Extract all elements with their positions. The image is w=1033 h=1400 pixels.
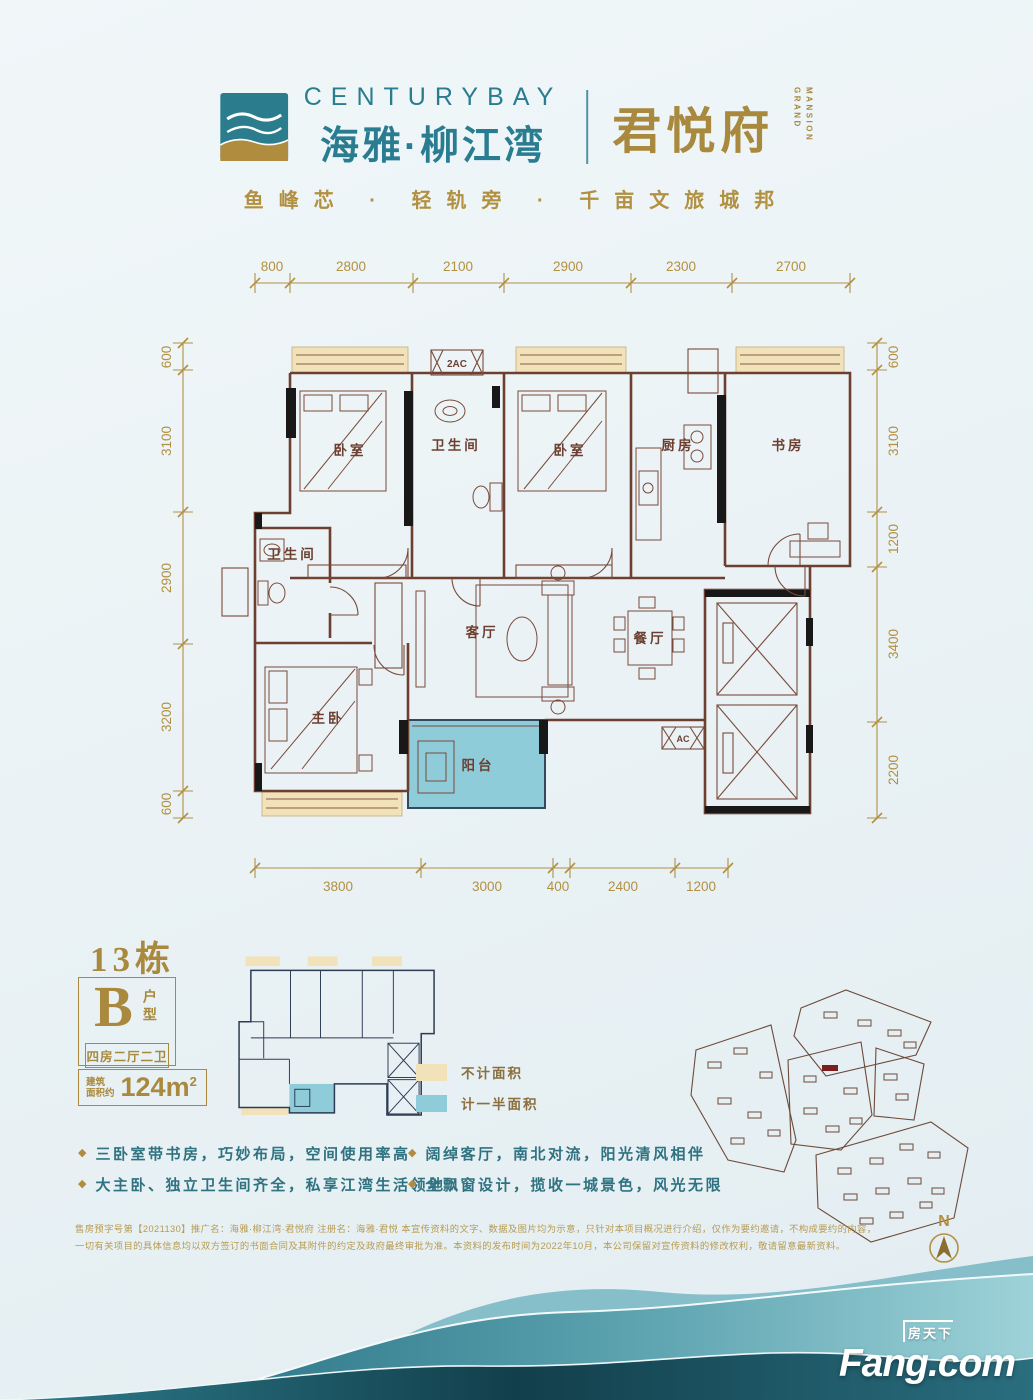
brand-divider [586, 90, 588, 164]
unit-type-box: B 户型 四房二厅二卫 [78, 977, 176, 1066]
label-study: 书房 [772, 437, 805, 453]
feature-text-2: 阔绰客厅，南北对流，阳光清风相伴 [425, 1143, 705, 1164]
legend-not-counted: 不计面积 [416, 1062, 539, 1082]
label-bathroom1: 卫生间 [431, 437, 481, 453]
feature-item: ◆ 大主卧、独立卫生间齐全，私享江湾生活领地 [78, 1174, 445, 1205]
dim-right-1: 3100 [886, 426, 901, 456]
feature-text-3: 全飘窗设计，揽收一城景色，风光无限 [425, 1174, 723, 1195]
area-legend: 不计面积 计一半面积 [416, 1062, 539, 1124]
floor-plan: 800 2800 2100 2900 2300 2700 600 3100 29… [150, 243, 920, 898]
dim-left-0: 600 [159, 346, 174, 369]
brand-names: CENTURYBAY 海雅·柳江湾 [304, 83, 563, 171]
project-name-english: GRAND MANSION [792, 87, 813, 167]
features-left: ◆ 三卧室带书房，巧妙布局，空间使用率高 ◆ 大主卧、独立卫生间齐全，私享江湾生… [78, 1143, 445, 1205]
label-bathroom2: 卫生间 [267, 546, 317, 562]
project-name: 君悦府 [612, 92, 774, 163]
legend-swatch-blue [416, 1095, 447, 1112]
dim-bottom-4: 1200 [686, 879, 716, 894]
legend-label-half-counted: 计一半面积 [461, 1093, 539, 1113]
area-label: 建筑面积约 [86, 1077, 115, 1099]
diamond-bullet-icon: ◆ [78, 1177, 86, 1190]
brand-chinese: 海雅·柳江湾 [320, 115, 546, 171]
brand-header: CENTURYBAY 海雅·柳江湾 君悦府 GRAND MANSION [220, 82, 814, 172]
dim-left-3: 3200 [159, 702, 174, 732]
disclaimer: 售房预字号第【2021130】推广名：海雅·柳江湾·君悦府 注册名：海雅·君悦 … [75, 1221, 963, 1255]
feature-text-0: 三卧室带书房，巧妙布局，空间使用率高 [95, 1143, 410, 1164]
dimension-top: 800 2800 2100 2900 2300 2700 [250, 259, 855, 293]
label-bedroom1: 卧室 [334, 442, 367, 458]
site-buildings [708, 1012, 944, 1224]
dim-right-2: 1200 [886, 524, 901, 554]
feature-text-1: 大主卧、独立卫生间齐全，私享江湾生活领地 [95, 1174, 445, 1195]
label-2ac: 2AC [447, 359, 467, 370]
label-balcony: 阳台 [462, 757, 495, 773]
dim-top-0: 800 [261, 259, 284, 274]
unit-layout: 四房二厅二卫 [85, 1043, 169, 1068]
dim-bottom-3: 2400 [608, 879, 638, 894]
fang-logo-chinese: 房天下 [903, 1320, 953, 1342]
dim-right-3: 3400 [886, 629, 901, 659]
centurybay-logo-icon [220, 93, 288, 161]
dim-bottom-1: 3000 [472, 879, 502, 894]
feature-item: ◆ 三卧室带书房，巧妙布局，空间使用率高 [78, 1143, 445, 1174]
label-bedroom2: 卧室 [554, 442, 587, 458]
label-kitchen: 厨房 [662, 437, 695, 453]
dimension-right: 600 3100 1200 3400 2200 [867, 338, 901, 823]
dim-top-5: 2700 [776, 259, 806, 274]
dim-left-1: 3100 [159, 426, 174, 456]
elevator-shafts [717, 603, 797, 799]
feature-item: ◆ 阔绰客厅，南北对流，阳光清风相伴 [408, 1143, 723, 1174]
dim-bottom-0: 3800 [323, 879, 353, 894]
legend-half-counted: 计一半面积 [416, 1093, 539, 1113]
label-ac: AC [677, 734, 690, 744]
mini-floor-plan [228, 950, 443, 1130]
features-right: ◆ 阔绰客厅，南北对流，阳光清风相伴 ◆ 全飘窗设计，揽收一城景色，风光无限 [408, 1143, 723, 1205]
dim-bottom-2: 400 [547, 879, 570, 894]
dim-top-2: 2100 [443, 259, 473, 274]
unit-area-box: 建筑面积约 124m2 [78, 1069, 207, 1106]
dim-top-4: 2300 [666, 259, 696, 274]
legend-swatch-tan [416, 1064, 447, 1081]
disclaimer-line-1: 售房预字号第【2021130】推广名：海雅·柳江湾·君悦府 注册名：海雅·君悦 … [75, 1221, 963, 1238]
label-master: 主卧 [312, 710, 345, 726]
diamond-bullet-icon: ◆ [408, 1177, 416, 1190]
feature-item: ◆ 全飘窗设计，揽收一城景色，风光无限 [408, 1174, 723, 1205]
legend-label-not-counted: 不计面积 [461, 1062, 523, 1082]
dim-top-1: 2800 [336, 259, 366, 274]
dim-left-4: 600 [159, 793, 174, 816]
highlighted-building-13 [822, 1065, 838, 1071]
brand-english: CENTURYBAY [304, 83, 563, 112]
dimension-left: 600 3100 2900 3200 600 [159, 338, 193, 823]
tagline: 鱼峰芯 · 轻轨旁 · 千亩文旅城邦 [0, 184, 1033, 213]
fang-logo: 房天下 Fang.com [815, 1320, 1015, 1386]
dimension-bottom: 3800 3000 400 2400 1200 [250, 858, 733, 894]
dim-right-0: 600 [886, 346, 901, 369]
area-value: 124m2 [121, 1072, 197, 1103]
label-dining: 餐厅 [633, 630, 667, 646]
mansion-label: MANSION [804, 87, 813, 167]
dim-left-2: 2900 [159, 563, 174, 593]
dim-right-4: 2200 [886, 755, 901, 785]
grand-label: GRAND [792, 87, 801, 167]
dim-top-3: 2900 [553, 259, 583, 274]
label-living: 客厅 [465, 624, 499, 640]
fang-logo-english: Fang.com [839, 1342, 1015, 1386]
diamond-bullet-icon: ◆ [78, 1146, 86, 1159]
unit-type-letter: B [94, 981, 133, 1033]
unit-type-suffix: 户型 [140, 989, 160, 1025]
diamond-bullet-icon: ◆ [408, 1146, 416, 1159]
